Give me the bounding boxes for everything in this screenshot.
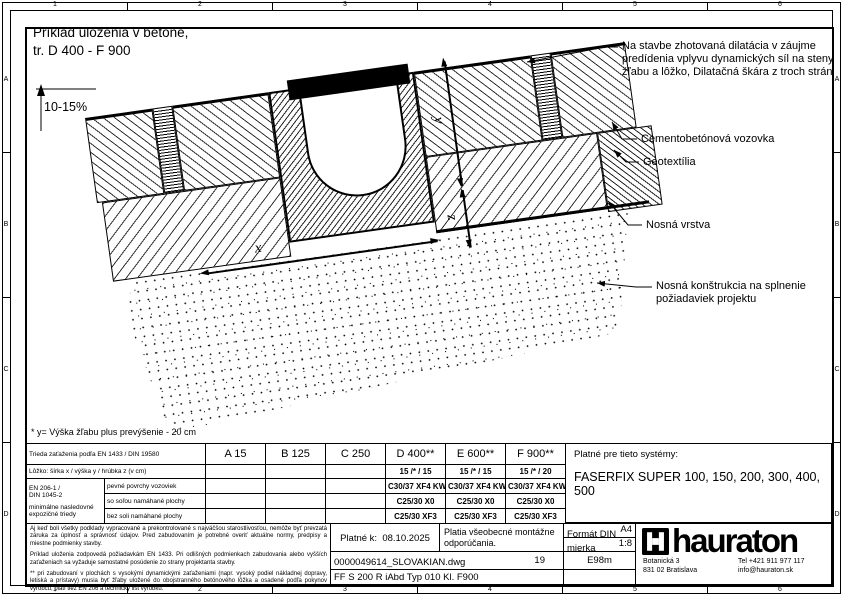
ruler-col-label: 3: [335, 586, 355, 594]
format-cell: Formát DIN A4: [563, 523, 636, 538]
general-note-cell: Platia všeobecné montážne odporúčania.: [439, 523, 564, 552]
pavement-slab-right-inner: [414, 55, 543, 157]
file-name-cell: 0000049614_SLOVAKIAN.dwg 19: [330, 551, 564, 570]
drawing-sheet: 1 2 3 4 5 6 1 2 3 4 5 6 A B C D A B C D …: [0, 0, 842, 595]
class-header: D 400**: [386, 444, 446, 465]
exposure-row-label: pevné povrchy vozoviek: [105, 479, 206, 494]
ruler-col-label: 2: [190, 1, 210, 9]
ruler-col-label: 3: [335, 1, 355, 9]
pavement-slab-left-inner: [172, 92, 280, 191]
ruler-row-label: A: [833, 76, 841, 84]
callout-concrete-pavement: Cementobetónová vozovka: [641, 133, 831, 146]
bedding-value: 15 /* / 15: [446, 465, 506, 479]
empty-cell: [563, 569, 636, 585]
pavement-slab-left-outer: [85, 109, 164, 204]
concrete-value: C25/30 XF3: [386, 509, 446, 524]
disclaimer-text: Aj keď boli všetky podklady vypracované …: [26, 523, 331, 585]
ruler-col-label: 5: [625, 1, 645, 9]
drawing-code: E98m: [564, 552, 635, 570]
logo-panel: hauraton Botanická 3 831 02 Bratislava T…: [635, 523, 832, 585]
ruler-col-label: 4: [480, 586, 500, 594]
systems-label: Platné pre tieto systémy:: [574, 449, 831, 460]
table-label-concrete-standard: EN 206-1 / DIN 1045-2 minimálne nasledov…: [27, 479, 105, 524]
valid-label: Platné k:: [340, 533, 377, 544]
general-note: Platia všeobecné montážne odporúčania.: [444, 527, 559, 549]
ruler-row-label: A: [2, 76, 10, 84]
bedding-value: [206, 465, 266, 479]
exposure-row-label: so soľou namáhané plochy: [105, 494, 206, 509]
callout-base-course: Nosná vrstva: [646, 219, 836, 232]
ruler-row-label: B: [2, 221, 10, 229]
class-header: F 900**: [506, 444, 566, 465]
drawing-title-line1: Príklad uloženia v betóne,: [33, 24, 188, 42]
valid-date-cell: Platné k: 08.10.2025: [330, 523, 440, 552]
table-label-load-class: Trieda zaťaženia podľa EN 1433 / DIN 195…: [27, 444, 206, 465]
class-header: A 15: [206, 444, 266, 465]
ruler-col-label: 4: [480, 1, 500, 9]
dimension-label-x: x: [254, 241, 263, 257]
slope-label: 10-15%: [44, 100, 87, 114]
class-header: C 250: [326, 444, 386, 465]
product-code-cell: FF S 200 R iAbd Typ 010 Kl. F900: [330, 569, 564, 585]
scale-value: 1:8: [619, 538, 632, 549]
ruler-row-label: D: [2, 511, 10, 519]
ruler-row-label: C: [833, 366, 841, 374]
concrete-value: C25/30 XF3: [446, 509, 506, 524]
concrete-value: C25/30 X0: [446, 494, 506, 509]
company-contact: Tel +421 911 977 117 info@hauraton.sk: [738, 558, 805, 575]
load-class-table: Trieda zaťaženia podľa EN 1433 / DIN 195…: [26, 443, 566, 524]
bedding-value: [326, 465, 386, 479]
company-address: Botanická 3 831 02 Bratislava: [643, 558, 697, 575]
ruler-col-label: 6: [770, 1, 790, 9]
systems-value: FASERFIX SUPER 100, 150, 200, 300, 400, …: [574, 470, 831, 498]
code-cell: E98m: [563, 551, 636, 570]
concrete-value: C25/30 X0: [386, 494, 446, 509]
drawing-title-line2: tr. D 400 - F 900: [33, 42, 131, 60]
concrete-value: C30/37 XF4 KW: [386, 479, 446, 494]
systems-panel: Platné pre tieto systémy: FASERFIX SUPER…: [565, 443, 832, 523]
concrete-value: C30/37 XF4 KW: [446, 479, 506, 494]
concrete-value: C25/30 X0: [506, 494, 566, 509]
hauraton-logo-icon: [642, 528, 669, 555]
callout-geotextile: Geotextília: [643, 156, 833, 169]
concrete-value: C30/37 XF4 KW: [506, 479, 566, 494]
file-name: 0000049614_SLOVAKIAN.dwg: [334, 557, 465, 568]
table-label-bedding: Lôžko: šírka x / výška y / hrúbka z (v c…: [27, 465, 206, 479]
bedding-value: 15 /* / 20: [506, 465, 566, 479]
bedding-value: 15 /* / 15: [386, 465, 446, 479]
product-code: FF S 200 R iAbd Typ 010 Kl. F900: [334, 570, 563, 585]
ruler-col-label: 1: [45, 1, 65, 9]
valid-date: 08.10.2025: [382, 533, 430, 544]
ruler-row-label: C: [2, 366, 10, 374]
callout-dilatation: Na stavbe zhotovaná dilatácia v záujme p…: [622, 40, 834, 79]
concrete-value: C25/30 XF3: [506, 509, 566, 524]
exposure-row-label: bez soli namáhané plochy: [105, 509, 206, 524]
ruler-col-label: 6: [770, 586, 790, 594]
callout-load-bearing-structure: Nosná konštrukcia na splnenie požiadavie…: [656, 280, 836, 306]
brand-wordmark: hauraton: [672, 526, 797, 556]
footnote: * y= Výška žľabu plus prevýšenie - 20 cm: [31, 427, 196, 437]
ruler-col-label: 5: [625, 586, 645, 594]
format-value: A4: [620, 524, 632, 535]
ruler-row-label: D: [833, 511, 841, 519]
class-header: E 600**: [446, 444, 506, 465]
sheet-number: 19: [534, 552, 545, 570]
bedding-value: [266, 465, 326, 479]
class-header: B 125: [266, 444, 326, 465]
